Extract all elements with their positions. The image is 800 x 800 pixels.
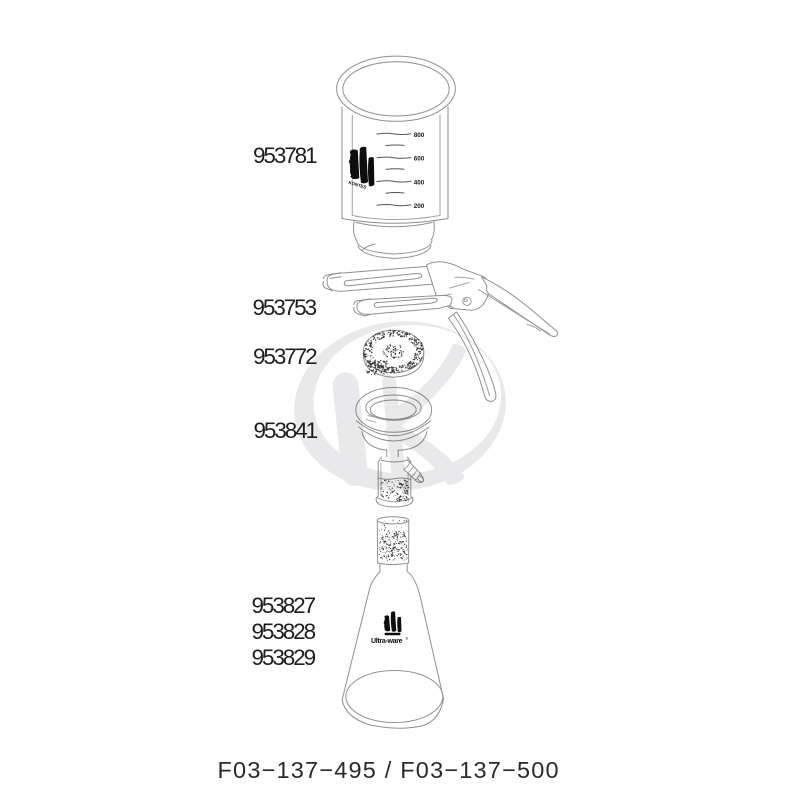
svg-text:600: 600	[414, 156, 425, 163]
svg-text:800: 800	[414, 132, 425, 139]
svg-text:400: 400	[414, 180, 425, 187]
svg-text:®: ®	[406, 637, 409, 641]
svg-text:200: 200	[414, 203, 425, 210]
svg-text:Ultra-ware: Ultra-ware	[371, 638, 403, 645]
